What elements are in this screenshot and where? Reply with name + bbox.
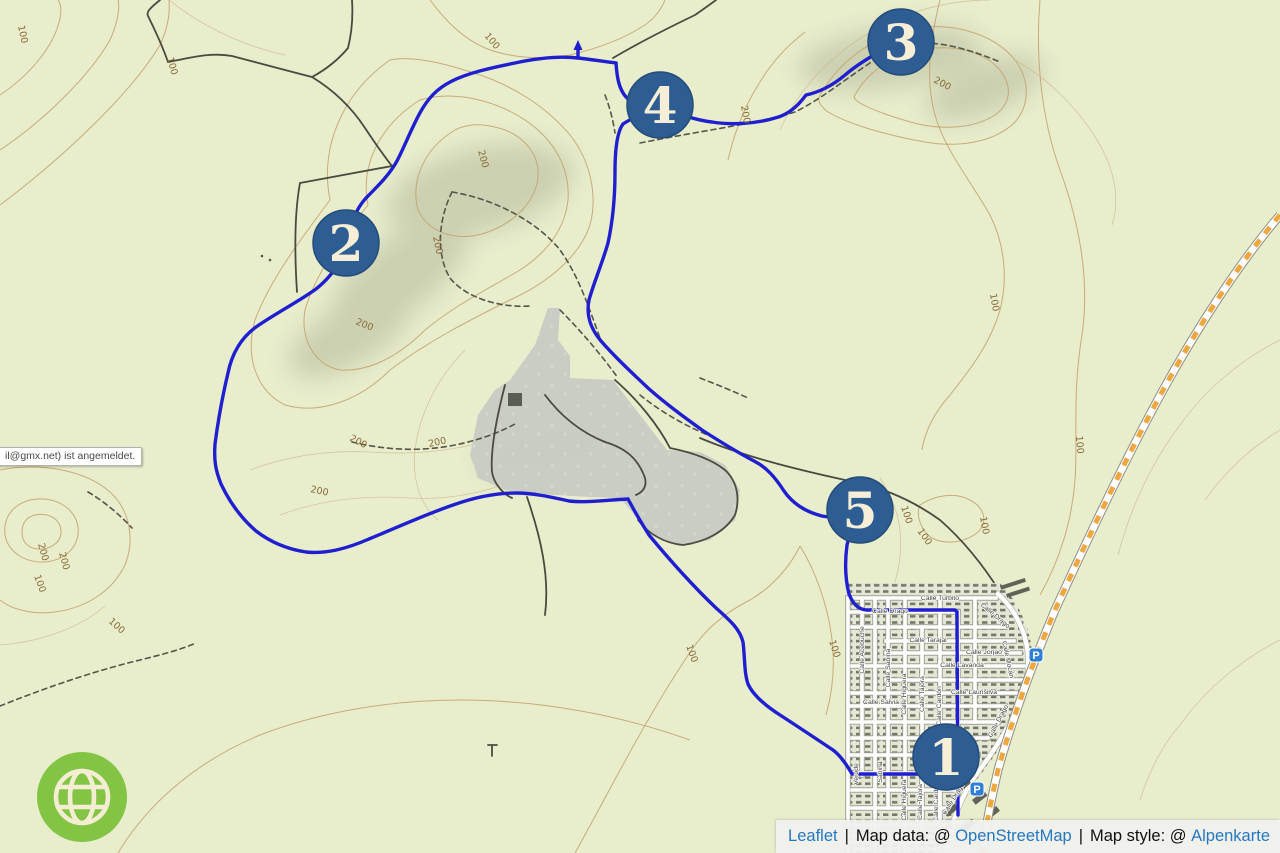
login-tooltip-text: il@gmx.net) ist angemeldet. — [5, 450, 135, 462]
map-style-label: Map style: @ — [1090, 827, 1187, 846]
street-name-label: Calle Tarajal — [909, 637, 947, 644]
globe-logo-icon — [37, 752, 127, 842]
svg-text:4: 4 — [643, 76, 678, 135]
alpenkarte-link[interactable]: Alpenkarte — [1191, 827, 1270, 846]
route-marker-3[interactable]: 3 — [868, 9, 934, 75]
parking-icon[interactable]: P — [970, 782, 984, 796]
svg-text:5: 5 — [843, 481, 878, 540]
svg-text:2: 2 — [329, 214, 364, 273]
street-name-label: Calle Higuera — [901, 673, 908, 714]
route-marker-4[interactable]: 4 — [627, 72, 693, 138]
svg-text:1: 1 — [929, 728, 964, 787]
route-marker-5[interactable]: 5 — [827, 477, 893, 543]
svg-text:3: 3 — [884, 13, 919, 72]
attribution-separator: | — [1079, 827, 1083, 846]
street-name-label: Calle Tajora — [917, 784, 924, 820]
map-tiles: 1001001002002002002002002002002002002001… — [0, 0, 1280, 853]
street-name-label: Calle Drago — [872, 608, 908, 615]
street-name-label: Calle Lavanda — [940, 662, 984, 669]
street-name-label: Calle Laurisilva — [951, 689, 997, 696]
attribution-bar: Leaflet | Map data: @ OpenStreetMap | Ma… — [776, 820, 1280, 853]
svg-text:P: P — [1032, 650, 1039, 662]
street-name-label: Calle Sabina — [885, 649, 892, 688]
svg-text:P: P — [973, 784, 980, 796]
login-tooltip: il@gmx.net) ist angemeldet. — [0, 447, 142, 466]
street-name-label: Calle Turbito — [921, 595, 959, 602]
street-name-label: Sabina — [877, 761, 884, 782]
leaflet-link[interactable]: Leaflet — [788, 827, 838, 846]
contour-elevation-label: 100 — [1073, 435, 1086, 454]
route-marker-1[interactable]: 1 — [913, 724, 979, 790]
map-canvas[interactable]: 1001001002002002002002002002002002002001… — [0, 0, 1280, 853]
map-data-label: Map data: @ — [856, 827, 951, 846]
street-name-label: Verode — [853, 763, 860, 785]
attribution-separator: | — [845, 827, 849, 846]
street-name-label: Calle Salvia — [863, 699, 899, 706]
route-marker-2[interactable]: 2 — [313, 210, 379, 276]
openstreetmap-link[interactable]: OpenStreetMap — [955, 827, 1071, 846]
street-name-label: Calle Acebuche — [859, 626, 866, 673]
street-name-label: Calle Tajora — [919, 676, 926, 712]
parking-icon[interactable]: P — [1029, 648, 1043, 662]
street-name-label: Calle Cardón — [936, 686, 943, 726]
street-name-label: Calle Jorjao — [966, 649, 1002, 656]
street-name-label: Calle Higuera — [901, 779, 908, 820]
